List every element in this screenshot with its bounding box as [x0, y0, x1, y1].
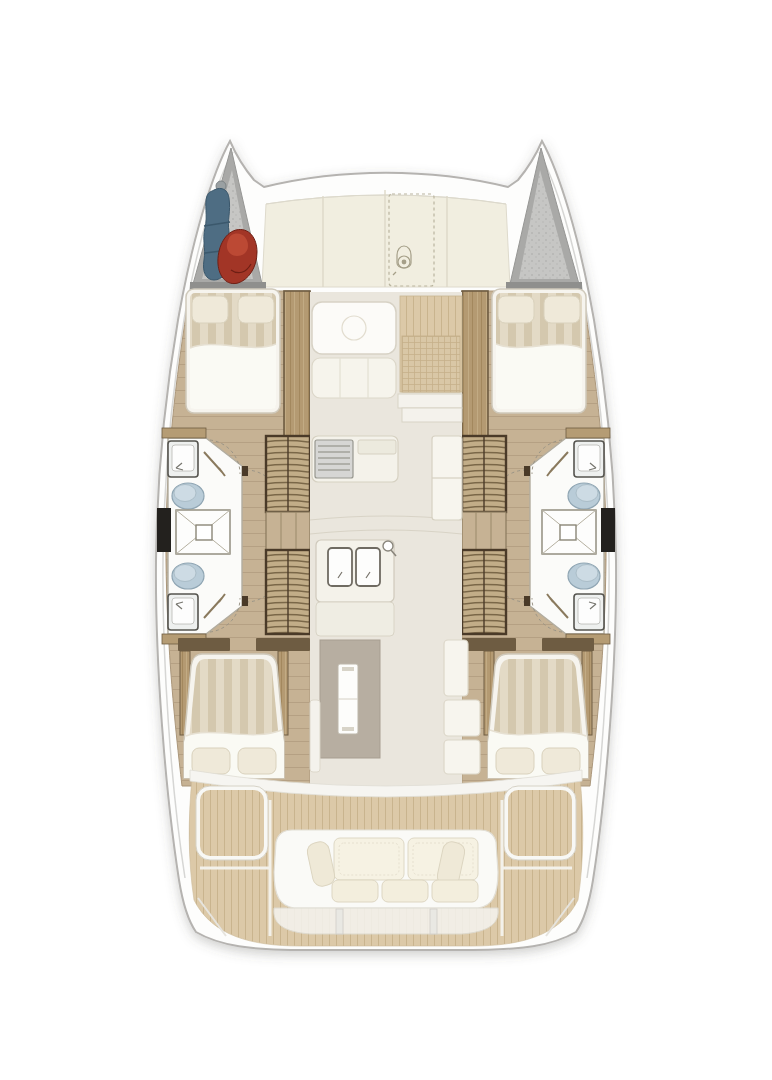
galley-lower-cabinet — [316, 602, 394, 636]
saloon — [310, 292, 480, 797]
forward-berth-sheet — [190, 344, 276, 409]
toilet-lid — [174, 565, 196, 582]
transom-post — [430, 909, 437, 934]
sink-basin — [172, 598, 194, 624]
foredeck-panel-area — [262, 195, 510, 287]
deck-hatch-starboard — [506, 788, 574, 858]
companionway-steps — [266, 436, 310, 634]
port-side-seat — [310, 700, 320, 772]
dinette-bench — [312, 358, 396, 398]
cockpit — [189, 770, 583, 946]
galley-sink-basin — [356, 548, 380, 586]
transom-post — [336, 909, 343, 934]
deck-hatch-port — [198, 788, 266, 858]
shower-drain — [196, 525, 212, 540]
sofa-seat-cushion — [432, 880, 478, 902]
sofa-seat-cushion — [332, 880, 378, 902]
nav-grid-mat — [402, 336, 460, 392]
steps-landing — [266, 512, 310, 550]
leaf-latch — [342, 667, 354, 671]
cockpit-sofa — [274, 830, 498, 908]
pillow — [238, 748, 276, 774]
door-post — [242, 466, 248, 476]
vanity-sill — [162, 428, 206, 438]
toilet-lid — [174, 485, 196, 502]
wardrobe-panel — [284, 291, 310, 439]
mixer-tap — [383, 541, 393, 551]
dinette-table — [312, 302, 396, 354]
aft-cabin-header — [256, 638, 310, 651]
aft-cabin-header — [178, 638, 230, 651]
sofa-back-cushion — [334, 838, 404, 880]
transom-band — [274, 908, 498, 934]
pillow — [192, 748, 230, 774]
catamaran-floorplan-page — [0, 0, 772, 1080]
dark-locker — [157, 508, 171, 552]
pillow — [192, 296, 228, 323]
entry-step — [402, 408, 462, 422]
settee-cushion — [444, 640, 468, 696]
door-post — [242, 596, 248, 606]
settee-cushion — [444, 740, 480, 774]
pillow — [238, 296, 274, 323]
aft-berth-mattress — [189, 659, 279, 744]
entry-step — [398, 394, 462, 408]
sink-basin — [172, 445, 194, 471]
galley-shelf — [358, 440, 396, 454]
foredeck — [262, 190, 510, 287]
saloon-table — [320, 640, 380, 758]
catamaran-floorplan — [0, 0, 772, 1080]
settee-cushion — [444, 700, 480, 736]
sofa-seat-cushion — [382, 880, 428, 902]
shower-stall — [157, 508, 230, 554]
galley-sink-basin — [328, 548, 352, 586]
leaf-latch — [342, 727, 354, 731]
